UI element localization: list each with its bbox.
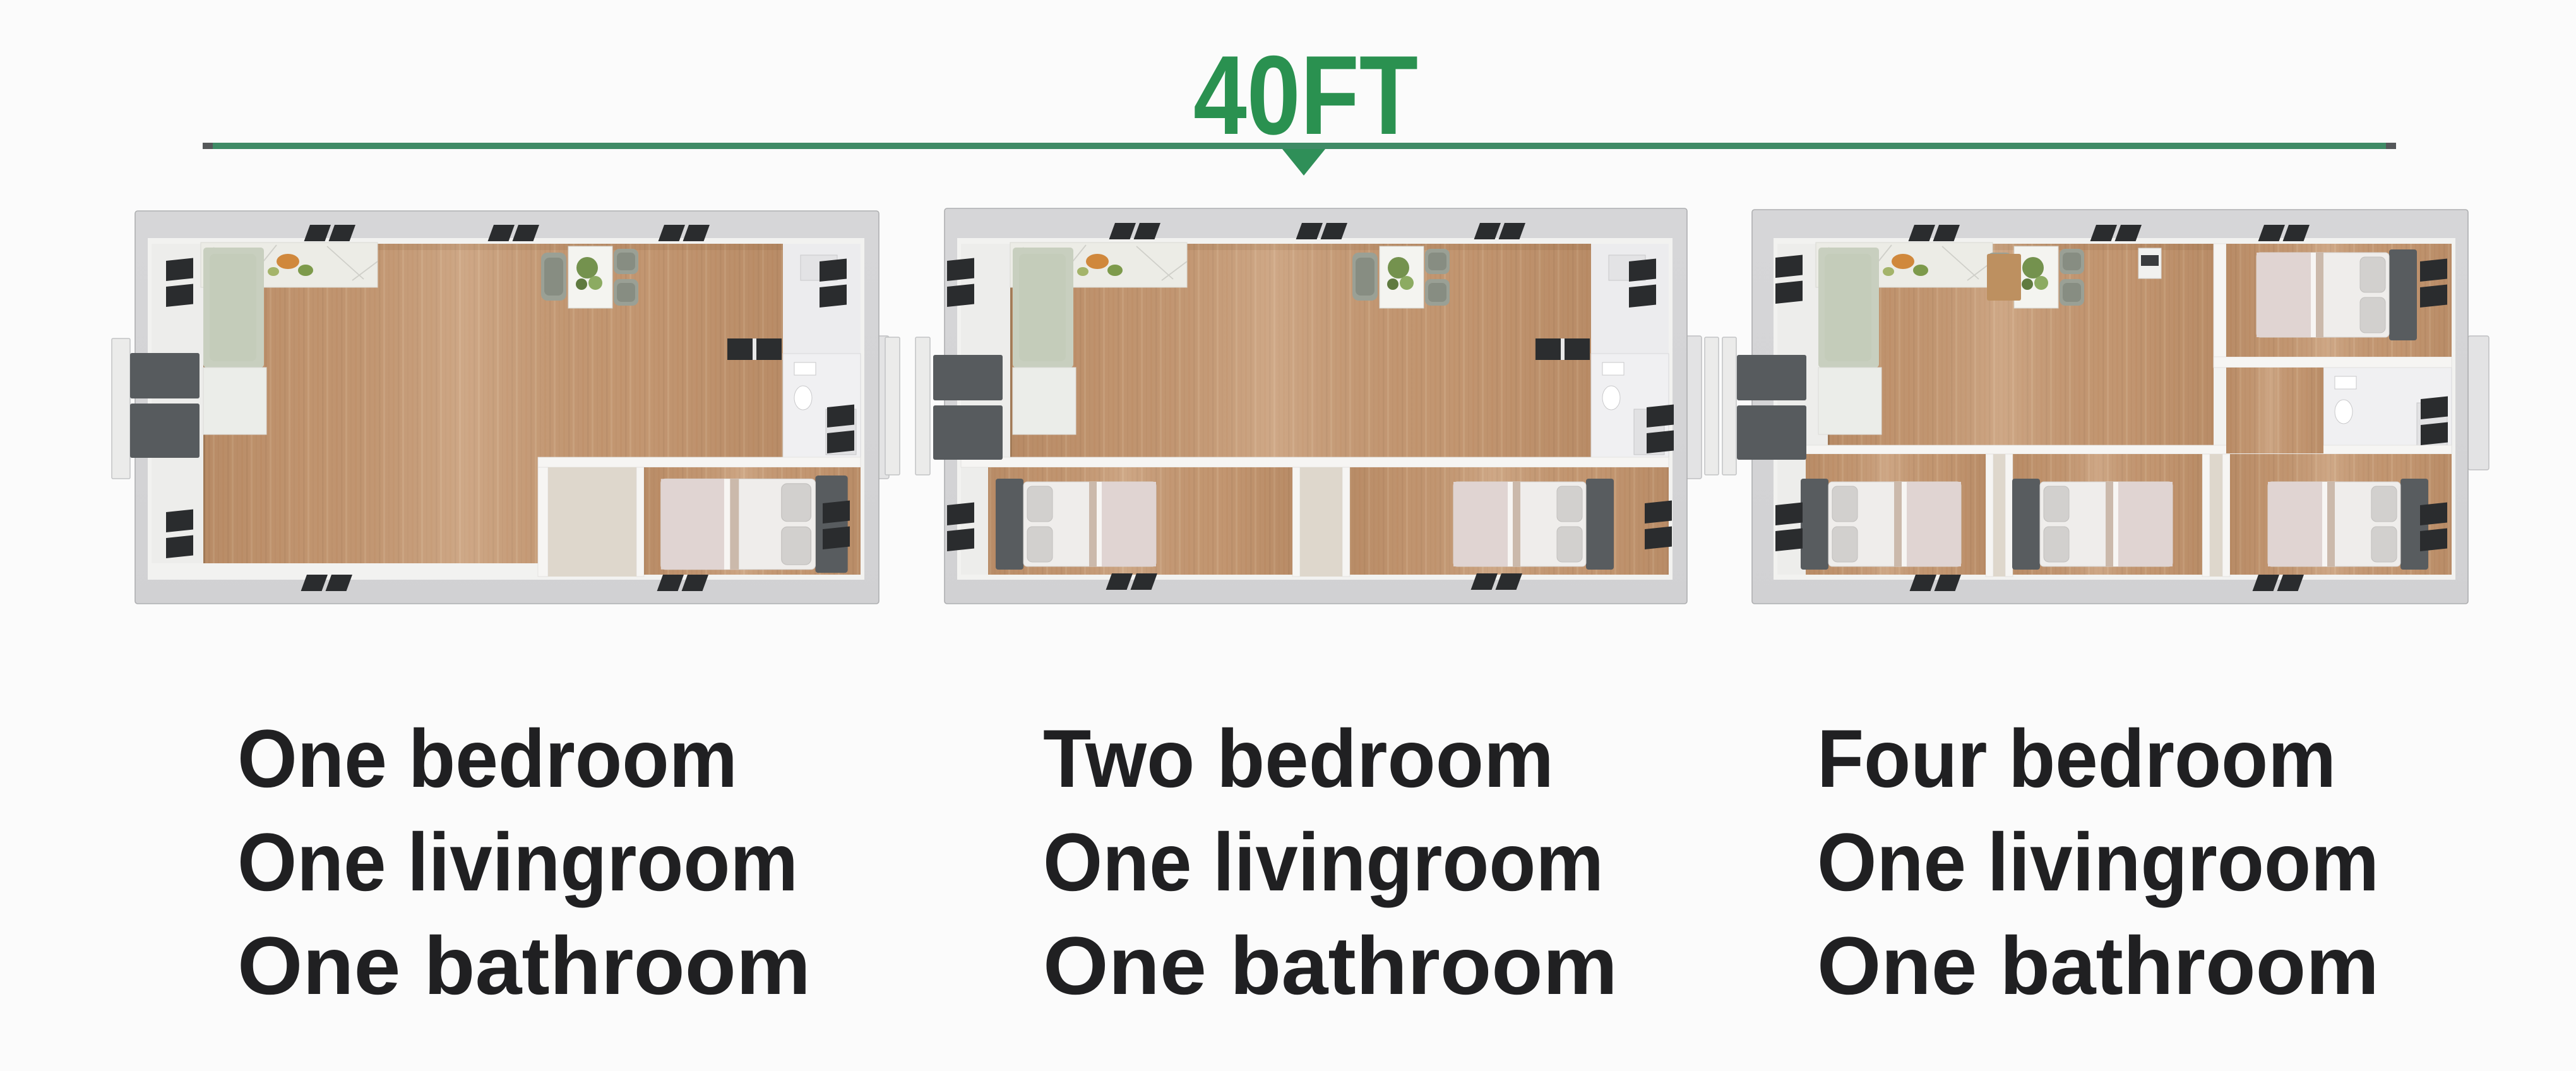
svg-text:One bathroom: One bathroom — [1817, 919, 2379, 1012]
svg-text:One bathroom: One bathroom — [1043, 919, 1618, 1012]
svg-text:Four bedroom: Four bedroom — [1817, 712, 2336, 805]
svg-text:One livingroom: One livingroom — [1043, 816, 1604, 908]
svg-text:One bedroom: One bedroom — [237, 712, 737, 805]
svg-text:One livingroom: One livingroom — [1817, 816, 2379, 908]
svg-text:One livingroom: One livingroom — [237, 816, 798, 908]
svg-text:40FT: 40FT — [1193, 32, 1418, 158]
svg-text:Two bedroom: Two bedroom — [1043, 712, 1554, 805]
svg-text:One bathroom: One bathroom — [237, 919, 811, 1012]
